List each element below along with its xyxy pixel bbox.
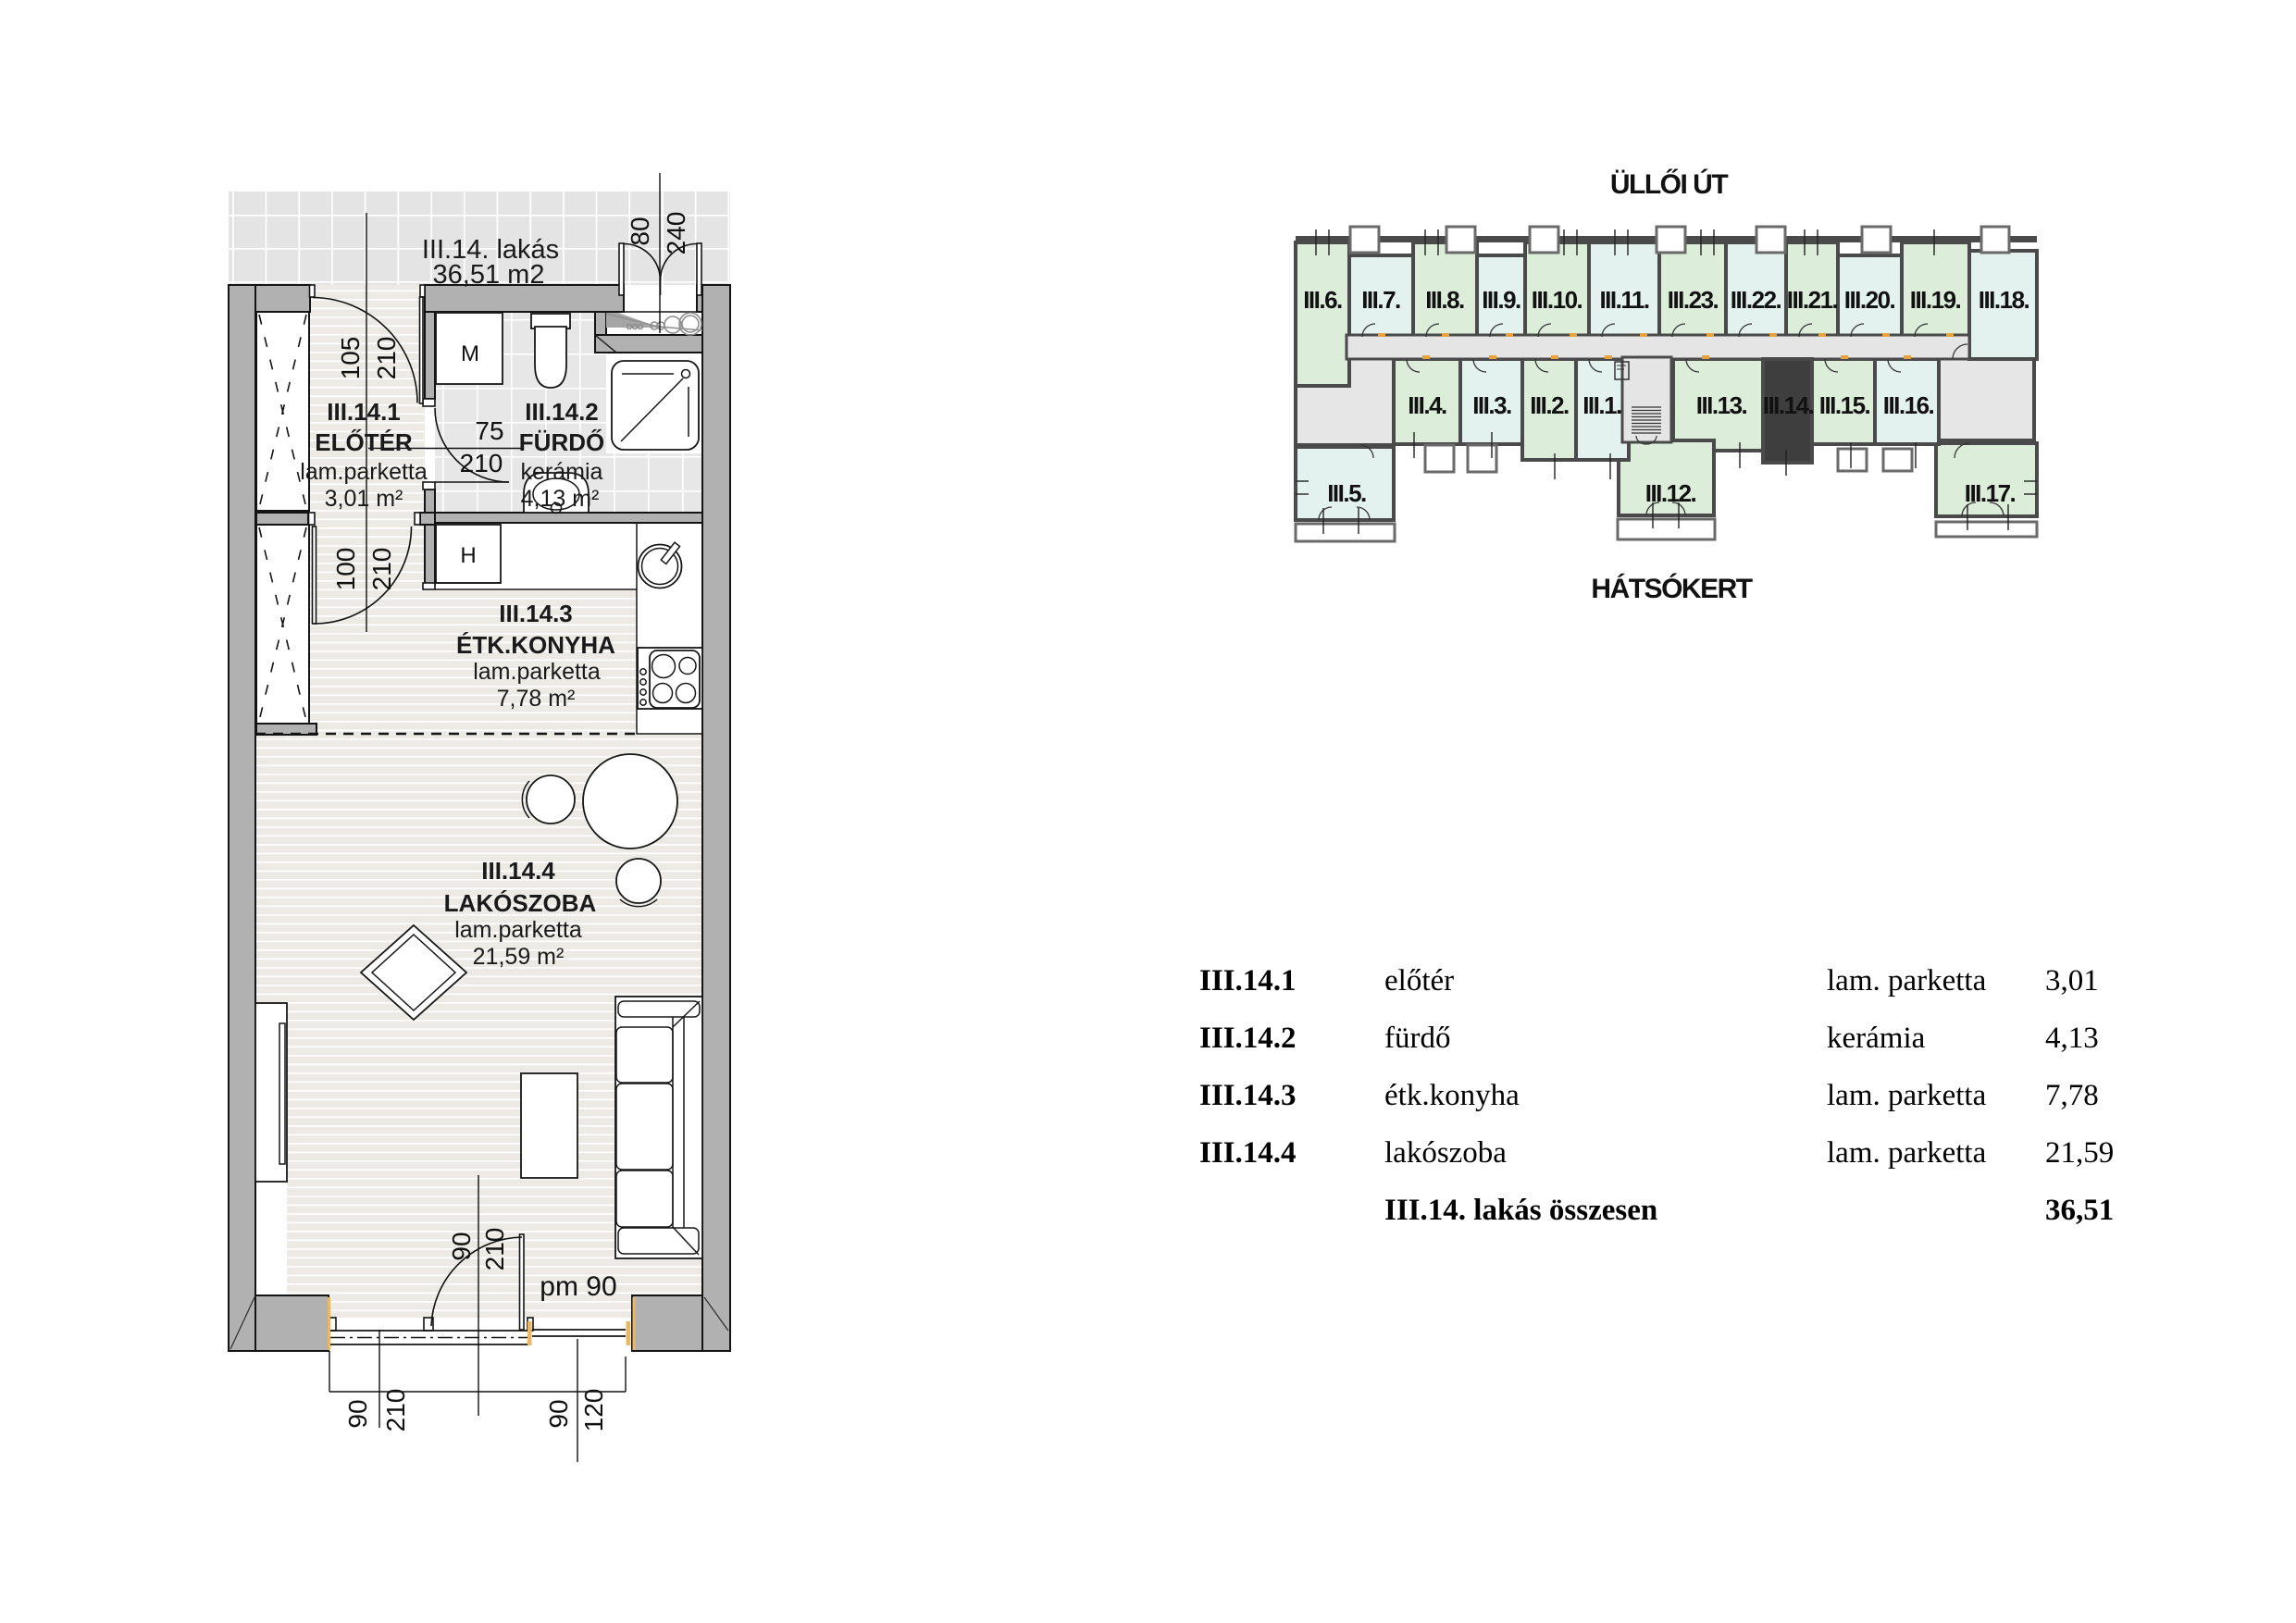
- svg-text:4,13 m²: 4,13 m²: [521, 486, 600, 512]
- svg-text:III.19.: III.19.: [1910, 286, 1961, 314]
- svg-text:III.12.: III.12.: [1645, 479, 1696, 507]
- svg-text:210: 210: [460, 449, 503, 477]
- svg-text:III.4.: III.4.: [1408, 391, 1446, 419]
- svg-text:210: 210: [480, 1228, 509, 1271]
- svg-text:LAKÓSZOBA: LAKÓSZOBA: [444, 889, 597, 917]
- svg-text:lakószoba: lakószoba: [1384, 1136, 1507, 1170]
- svg-text:III.1.: III.1.: [1582, 391, 1621, 419]
- svg-text:III.14.: III.14.: [1763, 391, 1814, 419]
- svg-text:előtér: előtér: [1384, 964, 1454, 997]
- svg-text:80: 80: [626, 217, 654, 245]
- svg-text:H: H: [460, 543, 476, 568]
- svg-text:étk.konyha: étk.konyha: [1384, 1079, 1520, 1112]
- svg-text:III.8.: III.8.: [1425, 286, 1464, 314]
- svg-text:lam.parketta: lam.parketta: [473, 659, 601, 685]
- svg-text:III.22.: III.22.: [1731, 286, 1781, 314]
- svg-text:kerámia: kerámia: [1827, 1022, 1926, 1055]
- svg-text:III.20.: III.20.: [1844, 286, 1895, 314]
- svg-text:III.14. lakás összesen: III.14. lakás összesen: [1384, 1194, 1657, 1227]
- svg-text:ELŐTÉR: ELŐTÉR: [315, 428, 413, 456]
- svg-text:90: 90: [343, 1399, 372, 1428]
- svg-text:III.14.4: III.14.4: [1199, 1136, 1297, 1170]
- svg-text:lam. parketta: lam. parketta: [1827, 1079, 1987, 1112]
- svg-text:III.5.: III.5.: [1327, 479, 1366, 507]
- svg-text:90: 90: [447, 1232, 476, 1260]
- svg-text:III.14.4: III.14.4: [481, 857, 555, 885]
- svg-text:III.6.: III.6.: [1303, 286, 1342, 314]
- svg-text:M: M: [461, 341, 479, 366]
- svg-text:III.14.2: III.14.2: [1199, 1022, 1297, 1055]
- svg-text:III.14.3: III.14.3: [1199, 1079, 1297, 1112]
- svg-text:III.14.1: III.14.1: [327, 398, 401, 426]
- svg-text:III.14.2: III.14.2: [525, 398, 599, 426]
- svg-text:kerámia: kerámia: [521, 459, 603, 485]
- svg-text:III.14.1: III.14.1: [1199, 964, 1297, 997]
- svg-text:III.2.: III.2.: [1530, 391, 1569, 419]
- svg-text:fürdő: fürdő: [1384, 1022, 1450, 1055]
- svg-text:III.21.: III.21.: [1787, 286, 1838, 314]
- svg-text:4,13: 4,13: [2045, 1022, 2099, 1055]
- svg-text:III.11.: III.11.: [1599, 286, 1648, 314]
- svg-text:210: 210: [372, 337, 401, 380]
- svg-text:III.9.: III.9.: [1482, 286, 1520, 314]
- svg-text:III.3.: III.3.: [1472, 391, 1511, 419]
- svg-text:lam.parketta: lam.parketta: [300, 459, 428, 485]
- svg-text:75: 75: [475, 416, 503, 445]
- svg-text:21,59 m²: 21,59 m²: [473, 944, 565, 970]
- svg-text:120: 120: [579, 1389, 608, 1432]
- svg-text:210: 210: [381, 1389, 410, 1432]
- svg-text:3,01: 3,01: [2045, 964, 2099, 997]
- svg-text:ÉTK.KONYHA: ÉTK.KONYHA: [456, 631, 615, 659]
- svg-text:ÜLLŐI ÚT: ÜLLŐI ÚT: [1610, 168, 1728, 200]
- svg-text:7,78: 7,78: [2045, 1079, 2099, 1112]
- svg-text:III.23.: III.23.: [1668, 286, 1719, 314]
- svg-text:21,59: 21,59: [2045, 1136, 2114, 1170]
- svg-text:90: 90: [544, 1399, 573, 1428]
- svg-text:lam.parketta: lam.parketta: [454, 917, 582, 943]
- svg-text:240: 240: [662, 212, 690, 255]
- svg-text:105: 105: [336, 337, 365, 380]
- svg-text:III.15.: III.15.: [1819, 391, 1870, 419]
- svg-text:III.10.: III.10.: [1532, 286, 1582, 314]
- svg-text:3,01 m²: 3,01 m²: [325, 486, 403, 512]
- svg-text:FÜRDŐ: FÜRDŐ: [519, 428, 604, 456]
- svg-text:III.16.: III.16.: [1883, 391, 1934, 419]
- svg-text:III.18.: III.18.: [1979, 286, 2029, 314]
- svg-text:lam. parketta: lam. parketta: [1827, 964, 1987, 997]
- svg-text:210: 210: [367, 548, 396, 591]
- svg-text:III.17.: III.17.: [1965, 479, 2016, 507]
- svg-text:pm 90: pm 90: [540, 1271, 616, 1302]
- svg-text:100: 100: [331, 548, 360, 591]
- svg-text:III.14.3: III.14.3: [499, 600, 573, 627]
- svg-text:lam. parketta: lam. parketta: [1827, 1136, 1987, 1170]
- svg-text:36,51: 36,51: [2045, 1194, 2114, 1227]
- svg-text:HÁTSÓKERT: HÁTSÓKERT: [1591, 573, 1752, 604]
- svg-text:36,51 m2: 36,51 m2: [433, 260, 545, 290]
- svg-text:III.7.: III.7.: [1361, 286, 1400, 314]
- svg-text:7,78 m²: 7,78 m²: [497, 686, 576, 712]
- svg-text:III.13.: III.13.: [1696, 391, 1747, 419]
